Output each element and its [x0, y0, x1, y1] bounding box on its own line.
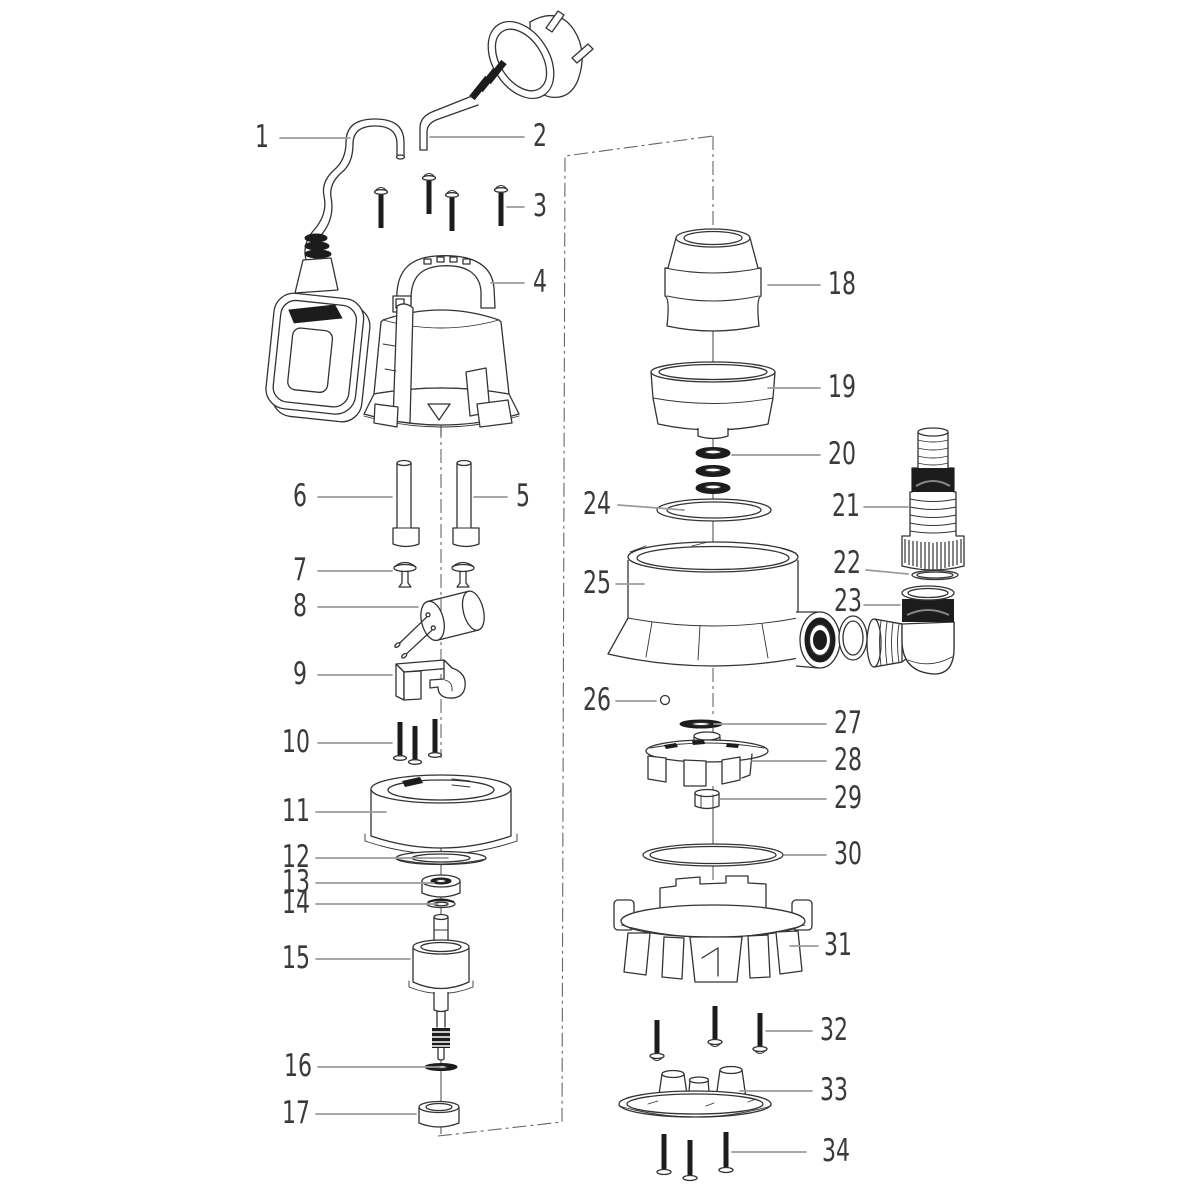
screw: [423, 174, 436, 215]
rotor-drawing: [409, 915, 473, 1061]
motor-housing-drawing: [365, 775, 517, 854]
callout-8: 8: [293, 588, 418, 624]
push-pin-pair-drawing: [394, 563, 474, 588]
callout-14: 14: [282, 885, 438, 921]
callout-23: 23: [834, 583, 900, 619]
volute-base-drawing: [614, 876, 812, 982]
bushing-17-drawing: [419, 1102, 459, 1128]
part-number: 21: [832, 488, 860, 524]
callout-10: 10: [282, 724, 392, 760]
screw-set-32-drawing: [650, 1006, 767, 1061]
part-number: 15: [282, 940, 310, 976]
stator-stack-drawing: [665, 229, 761, 331]
callout-2: 2: [430, 118, 547, 154]
part-number: 7: [293, 552, 307, 588]
part-number: 5: [516, 478, 530, 514]
callout-30: 30: [784, 836, 862, 872]
screw-set-10-drawing: [394, 719, 442, 764]
part-number: 27: [834, 705, 862, 741]
part-number: 11: [282, 793, 310, 829]
oring-30-drawing: [643, 844, 783, 866]
part-number: 18: [828, 266, 856, 302]
part-number: 9: [293, 656, 307, 692]
callout-15: 15: [282, 940, 410, 976]
callout-26: 26: [583, 682, 656, 718]
callout-27: 27: [714, 705, 862, 741]
screw: [495, 186, 508, 227]
part-number: 2: [533, 118, 547, 154]
part-number: 14: [282, 885, 310, 921]
part-number: 1: [255, 119, 269, 155]
part-number: 23: [834, 583, 862, 619]
callout-16: 16: [284, 1048, 440, 1084]
seal-washer-22-drawing: [912, 571, 958, 580]
exploded-parts-diagram: 1 2 3 4 5 6 7 8 9 10 11 12 13 14 15 16 1…: [0, 0, 1200, 1200]
callout-7: 7: [293, 552, 392, 588]
screw-set-34-drawing: [657, 1132, 733, 1181]
screw: [375, 188, 388, 229]
callout-19: 19: [768, 369, 856, 405]
part-number: 8: [293, 588, 307, 624]
part-number: 3: [533, 188, 547, 224]
guide-pin-5-drawing: [453, 461, 479, 547]
part-number: 17: [282, 1095, 310, 1131]
pump-body-drawing: [608, 542, 840, 668]
cover-cup-drawing: [651, 362, 775, 439]
callout-17: 17: [282, 1095, 416, 1131]
capacitor-drawing: [386, 589, 491, 660]
impeller-drawing: [646, 732, 768, 786]
callout-22: 22: [833, 545, 908, 581]
callout-9: 9: [293, 656, 392, 692]
part-number: 24: [583, 486, 611, 522]
callout-5: 5: [474, 478, 530, 514]
callout-18: 18: [768, 266, 856, 302]
part-number: 19: [828, 369, 856, 405]
diagram-canvas: 1 2 3 4 5 6 7 8 9 10 11 12 13 14 15 16 1…: [0, 0, 1200, 1200]
callout-34: 34: [732, 1133, 850, 1169]
callout-4: 4: [491, 264, 547, 300]
part-number: 26: [583, 682, 611, 718]
screw: [446, 191, 459, 232]
part-number: 32: [820, 1012, 848, 1048]
bracket-drawing: [396, 660, 465, 700]
part-number: 10: [282, 724, 310, 760]
ball-26-drawing: [661, 696, 670, 705]
part-number: 33: [820, 1072, 848, 1108]
callout-28: 28: [752, 742, 862, 778]
callout-1: 1: [255, 119, 350, 155]
oring-set-20-drawing: [696, 448, 730, 494]
callout-32: 32: [766, 1012, 848, 1048]
callout-6: 6: [293, 478, 392, 514]
part-number: 22: [833, 545, 861, 581]
bearing-13-drawing: [422, 875, 460, 897]
callout-21: 21: [832, 488, 908, 524]
part-number: 31: [824, 927, 852, 963]
hose-connector-drawing: [902, 428, 964, 570]
part-number: 29: [834, 780, 862, 816]
screw-set-3-drawing: [375, 174, 508, 232]
part-number: 25: [583, 565, 611, 601]
part-number: 28: [834, 742, 862, 778]
callout-20: 20: [732, 436, 856, 472]
part-number: 16: [284, 1048, 312, 1084]
callout-3: 3: [507, 188, 547, 224]
guide-pin-6-drawing: [393, 461, 419, 547]
part-number: 6: [293, 478, 307, 514]
power-cord-plug-drawing: [420, 10, 593, 150]
part-number: 20: [828, 436, 856, 472]
part-number: 30: [834, 836, 862, 872]
callout-29: 29: [720, 780, 862, 816]
part-number: 34: [822, 1133, 850, 1169]
nut-29-drawing: [695, 790, 719, 809]
part-number: 4: [533, 264, 547, 300]
